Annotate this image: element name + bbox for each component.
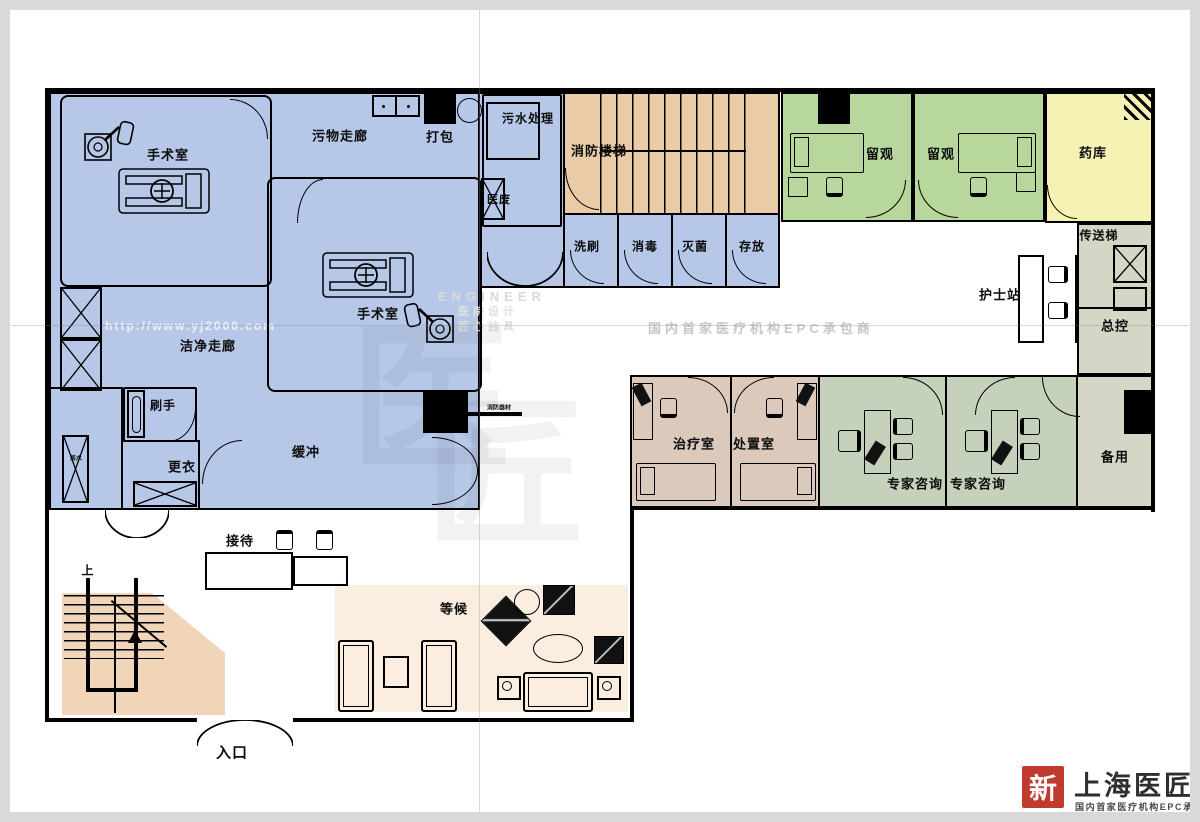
- room-label-observation-1: 留观: [866, 144, 894, 163]
- double-door-buffer-bottom: [105, 510, 169, 538]
- speaker-icon-2: [597, 676, 621, 700]
- column-packing: [424, 94, 456, 124]
- floor-plan-canvas: 手术室 污物走廊 打包 污水处理 医废 消防楼梯 洗刷 消毒 灭菌 存放 手术室…: [0, 0, 1200, 822]
- sofa-cushion: [528, 677, 588, 707]
- nurse-chair-2: [1048, 302, 1068, 319]
- column-spare: [1124, 390, 1152, 434]
- wall-right: [1151, 88, 1155, 512]
- room-label-waiting: 等候: [440, 599, 468, 618]
- reception-chair-1: [276, 530, 293, 550]
- room-label-consult-2: 专家咨询: [950, 474, 1006, 493]
- room-label-or2: 手术室: [357, 304, 399, 323]
- nurse-chair-1: [1048, 266, 1068, 283]
- consult2-chair-right-1: [1020, 418, 1040, 435]
- chair-observation-1: [826, 177, 843, 197]
- room-label-pharmacy: 药库: [1079, 143, 1107, 162]
- bed-observation-1: [790, 133, 864, 173]
- wall-mid-vertical: [630, 506, 634, 722]
- label-entrance: 入口: [216, 742, 248, 763]
- logo-tagline: 国内首家医疗机构EPC承包商: [1075, 800, 1200, 813]
- waiting-sofa-left: [338, 640, 374, 712]
- sink-dot-1: [382, 105, 385, 108]
- consult2-chair-left: [965, 430, 988, 452]
- room-label-buffer: 缓冲: [292, 442, 320, 461]
- wall-nurse-partition: [1075, 255, 1078, 343]
- double-door-corridor: [487, 252, 563, 286]
- disposal-pillow: [797, 467, 812, 495]
- sofa-cushion: [343, 645, 369, 707]
- wall-left-strip: [121, 387, 123, 510]
- double-sink-icon: [372, 95, 420, 117]
- chair-observation-2: [970, 177, 987, 197]
- stairs-arrowhead: [128, 630, 142, 643]
- sink-dot-2: [407, 105, 410, 108]
- waiting-sofa-bottom: [523, 672, 593, 712]
- room-label-sterilize: 灭菌: [682, 238, 708, 255]
- guide-line-horizontal: [0, 325, 1200, 326]
- wall-bottom-right-seg: [293, 718, 634, 722]
- label-stairs-up: 上: [81, 562, 94, 579]
- operating-table-icon-or1: [118, 168, 210, 214]
- wall-changing-buffer: [198, 440, 200, 510]
- changing-xbox: [133, 481, 197, 507]
- room-label-treatment: 治疗室: [673, 434, 715, 453]
- bed-observation-2: [958, 133, 1036, 173]
- brand-logo: 新 上海医匠 国内首家医疗机构EPC承包商: [1020, 762, 1192, 814]
- plant-icon-3: [594, 636, 624, 664]
- reception-desk-side: [293, 556, 348, 586]
- shaft-xbox-2: [60, 339, 102, 391]
- room-label-clean-corridor: 洁净走廊: [180, 336, 236, 355]
- room-label-store: 存放: [739, 238, 765, 255]
- room-label-scrub: 刷手: [150, 397, 176, 414]
- watermark-epc: 国内首家医疗机构EPC承包商: [648, 318, 874, 337]
- wall-washrow-div2: [671, 215, 673, 288]
- room-label-disposal: 处置室: [733, 434, 775, 453]
- waiting-oval-table: [533, 634, 583, 663]
- watermark-url: http://www.yj2000.com: [105, 319, 276, 333]
- room-label-dumbwaiter: 传送梯: [1079, 227, 1118, 244]
- room-label-dirty-corridor: 污物走廊: [312, 126, 368, 145]
- treatment-bed: [636, 463, 716, 501]
- sink-divider: [395, 97, 397, 115]
- pillow-1: [794, 137, 809, 167]
- room-label-sewage: 污水处理: [502, 110, 554, 127]
- disposal-chair: [766, 398, 783, 418]
- room-label-nurse-station: 护士站: [979, 285, 1021, 304]
- room-label-medical-waste: 医废: [487, 191, 511, 207]
- guide-line-vertical: [479, 0, 480, 822]
- label-fire-equipment: 消防器材: [487, 403, 511, 412]
- wall-mid-horizontal: [630, 506, 1155, 510]
- room-label-tea: 茶水: [70, 454, 82, 463]
- wall-bottom-left-seg: [45, 718, 197, 722]
- speaker-icon-1: [497, 676, 521, 700]
- logo-seal: 新: [1020, 764, 1066, 810]
- consult1-chair-right-1: [893, 418, 913, 435]
- sidetable-observation-2: [1016, 172, 1036, 192]
- room-label-observation-2: 留观: [927, 144, 955, 163]
- logo-seal-character: 新: [1020, 764, 1066, 810]
- reception-desk-main: [205, 552, 293, 590]
- room-label-or1: 手术室: [147, 145, 189, 164]
- room-label-wash: 洗刷: [574, 238, 600, 255]
- room-label-fire-stairs: 消防楼梯: [571, 141, 627, 160]
- wall-washrow-div3: [725, 215, 727, 288]
- room-label-spare: 备用: [1101, 447, 1129, 466]
- room-label-changing: 更衣: [168, 457, 196, 476]
- sofa-cushion: [426, 645, 452, 707]
- room-label-packing: 打包: [426, 127, 454, 146]
- reception-chair-2: [316, 530, 333, 550]
- plant-icon-2: [543, 585, 575, 615]
- scrub-sink-bowl: [132, 396, 141, 433]
- scrub-sink-icon: [127, 390, 145, 438]
- column-buffer: [423, 392, 468, 433]
- nurse-station-desk: [1018, 255, 1044, 343]
- wall-washrow-div1: [617, 215, 619, 288]
- room-label-consult-1: 专家咨询: [887, 474, 943, 493]
- surgical-light-icon-or2: [395, 302, 455, 352]
- column-pharmacy-hatch: [1124, 94, 1151, 120]
- logo-name: 上海医匠: [1074, 764, 1194, 803]
- pillow-2: [1017, 137, 1032, 167]
- consult2-chair-right-2: [1020, 443, 1040, 460]
- surgical-light-icon-or1: [83, 120, 143, 170]
- disposal-bed: [740, 463, 816, 501]
- waiting-round-table: [514, 589, 540, 615]
- treatment-pillow: [640, 467, 655, 495]
- column-observation: [818, 94, 850, 124]
- tea-room-xbox: [62, 435, 89, 503]
- fire-equipment-bar: [468, 412, 522, 416]
- wall-left: [45, 88, 49, 722]
- sidetable-observation-1: [788, 177, 808, 197]
- waiting-table-square: [383, 656, 409, 688]
- wall-top: [45, 88, 1155, 92]
- operating-table-icon-or2: [322, 252, 414, 298]
- wall-changing-top: [123, 440, 200, 442]
- shaft-xbox-1: [60, 287, 102, 339]
- room-label-reception: 接待: [226, 531, 254, 550]
- consult1-chair-left: [838, 430, 861, 452]
- elevator-lower-box: [1113, 287, 1147, 311]
- treatment-chair: [660, 398, 677, 418]
- elevator-xbox: [1113, 245, 1147, 283]
- room-label-disinfect: 消毒: [632, 238, 658, 255]
- waiting-sofa-right: [421, 640, 457, 712]
- consult1-chair-right-2: [893, 443, 913, 460]
